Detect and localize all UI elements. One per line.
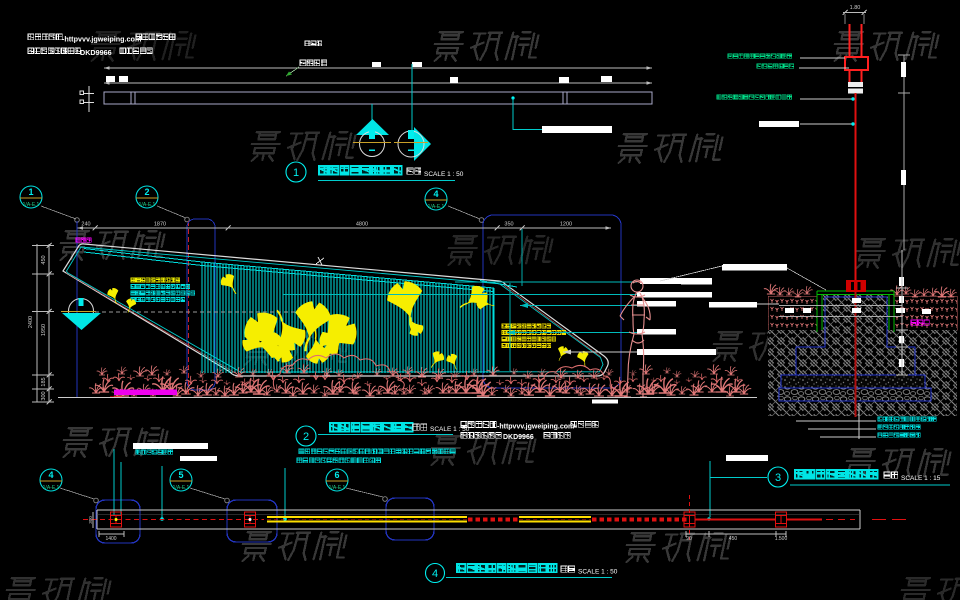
svg-text:DKD9966: DKD9966 [503,434,534,441]
svg-text:1400: 1400 [105,536,116,542]
svg-text:1.500: 1.500 [775,536,788,542]
svg-text:4: 4 [48,470,53,480]
svg-text:1950: 1950 [41,324,47,336]
svg-text:-httpvvv.jgweiping.com-: -httpvvv.jgweiping.com- [497,424,577,431]
svg-text:90: 90 [686,536,692,542]
svg-text:300: 300 [88,516,93,524]
svg-text:SCALE 1 : 50: SCALE 1 : 50 [430,426,470,433]
svg-text:1/A-E.1: 1/A-E.1 [139,202,156,208]
svg-text:3: 3 [775,472,781,484]
svg-text:DKD9966: DKD9966 [80,48,112,57]
svg-text:1870: 1870 [154,222,166,228]
svg-text:185: 185 [41,377,47,386]
svg-text:1.80: 1.80 [850,5,861,11]
svg-text:5: 5 [178,470,183,480]
svg-text:1/A-E.1: 1/A-E.1 [43,485,60,491]
svg-text:1: 1 [28,187,33,197]
svg-text:1: 1 [293,167,299,179]
svg-text:SCALE 1 : 50: SCALE 1 : 50 [578,569,618,576]
svg-text:6: 6 [334,470,339,480]
svg-text:2: 2 [303,431,309,443]
svg-text:1/A-E.1: 1/A-E.1 [23,202,40,208]
svg-text:450: 450 [729,536,738,542]
svg-text:1/A-E.1: 1/A-E.1 [329,485,346,491]
svg-text:4: 4 [433,189,438,199]
svg-text:350: 350 [504,222,513,228]
svg-text:1/A-E.1: 1/A-E.1 [428,204,445,210]
svg-text:2400: 2400 [28,316,34,328]
svg-text:SCALE 1 : 15: SCALE 1 : 15 [901,475,941,482]
svg-text:2: 2 [144,187,149,197]
svg-text:1/A-E.1: 1/A-E.1 [173,485,190,491]
svg-text:240: 240 [81,222,90,228]
svg-text:300: 300 [41,391,47,400]
svg-text:1200: 1200 [560,222,572,228]
svg-text:4800: 4800 [356,222,368,228]
svg-text:4: 4 [432,568,438,580]
svg-text:SCALE 1 : 50: SCALE 1 : 50 [424,171,464,178]
svg-text:-httpvvv.jgweiping.com-: -httpvvv.jgweiping.com- [62,35,144,44]
svg-text:450: 450 [41,255,47,264]
